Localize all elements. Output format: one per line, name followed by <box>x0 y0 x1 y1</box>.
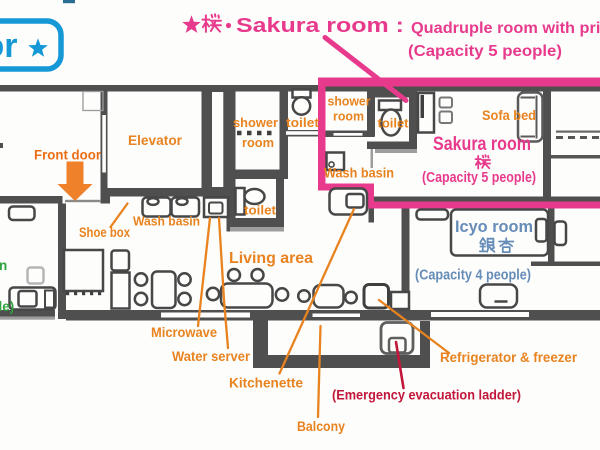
svg-text:shower: shower <box>328 94 371 109</box>
svg-text:Wash basin: Wash basin <box>133 214 200 229</box>
svg-text:toilet: toilet <box>244 203 277 218</box>
svg-text:Refrigerator & freezer: Refrigerator & freezer <box>440 350 578 365</box>
svg-text:toilet: toilet <box>378 116 410 131</box>
svg-text:room: room <box>242 135 274 150</box>
svg-text:toilet: toilet <box>286 115 320 130</box>
svg-text:Wash basin: Wash basin <box>324 166 394 181</box>
svg-text:Sakura room :: Sakura room : <box>236 15 404 37</box>
svg-text:room: room <box>333 109 364 124</box>
svg-text:Kitchenette: Kitchenette <box>229 376 303 391</box>
svg-text:(Capacity 5 people): (Capacity 5 people) <box>422 170 536 186</box>
svg-text:le): le) <box>0 299 14 314</box>
svg-text:Icyo room: Icyo room <box>455 218 533 236</box>
svg-text:Water server: Water server <box>172 349 251 364</box>
svg-text:floor: floor <box>0 27 18 65</box>
svg-text:shower: shower <box>233 115 278 130</box>
svg-text:Shoe box: Shoe box <box>79 225 130 240</box>
svg-text:Sakura room: Sakura room <box>433 134 531 155</box>
svg-text:Balcony: Balcony <box>297 419 345 434</box>
svg-text:(Capacity 4 people): (Capacity 4 people) <box>415 268 531 284</box>
svg-text:Front door: Front door <box>34 148 102 163</box>
svg-text:(Emergency evacuation ladder): (Emergency evacuation ladder) <box>332 388 521 403</box>
svg-text:Microwave: Microwave <box>151 325 217 340</box>
svg-text:Living area: Living area <box>229 250 313 267</box>
svg-text:Sofa bed: Sofa bed <box>482 108 536 123</box>
svg-text:n: n <box>0 258 7 273</box>
svg-text:Elevator: Elevator <box>128 132 183 148</box>
svg-text:(Capacity 5 people): (Capacity 5 people) <box>408 43 562 60</box>
svg-text:Quadruple room with private: Quadruple room with private <box>411 20 600 37</box>
